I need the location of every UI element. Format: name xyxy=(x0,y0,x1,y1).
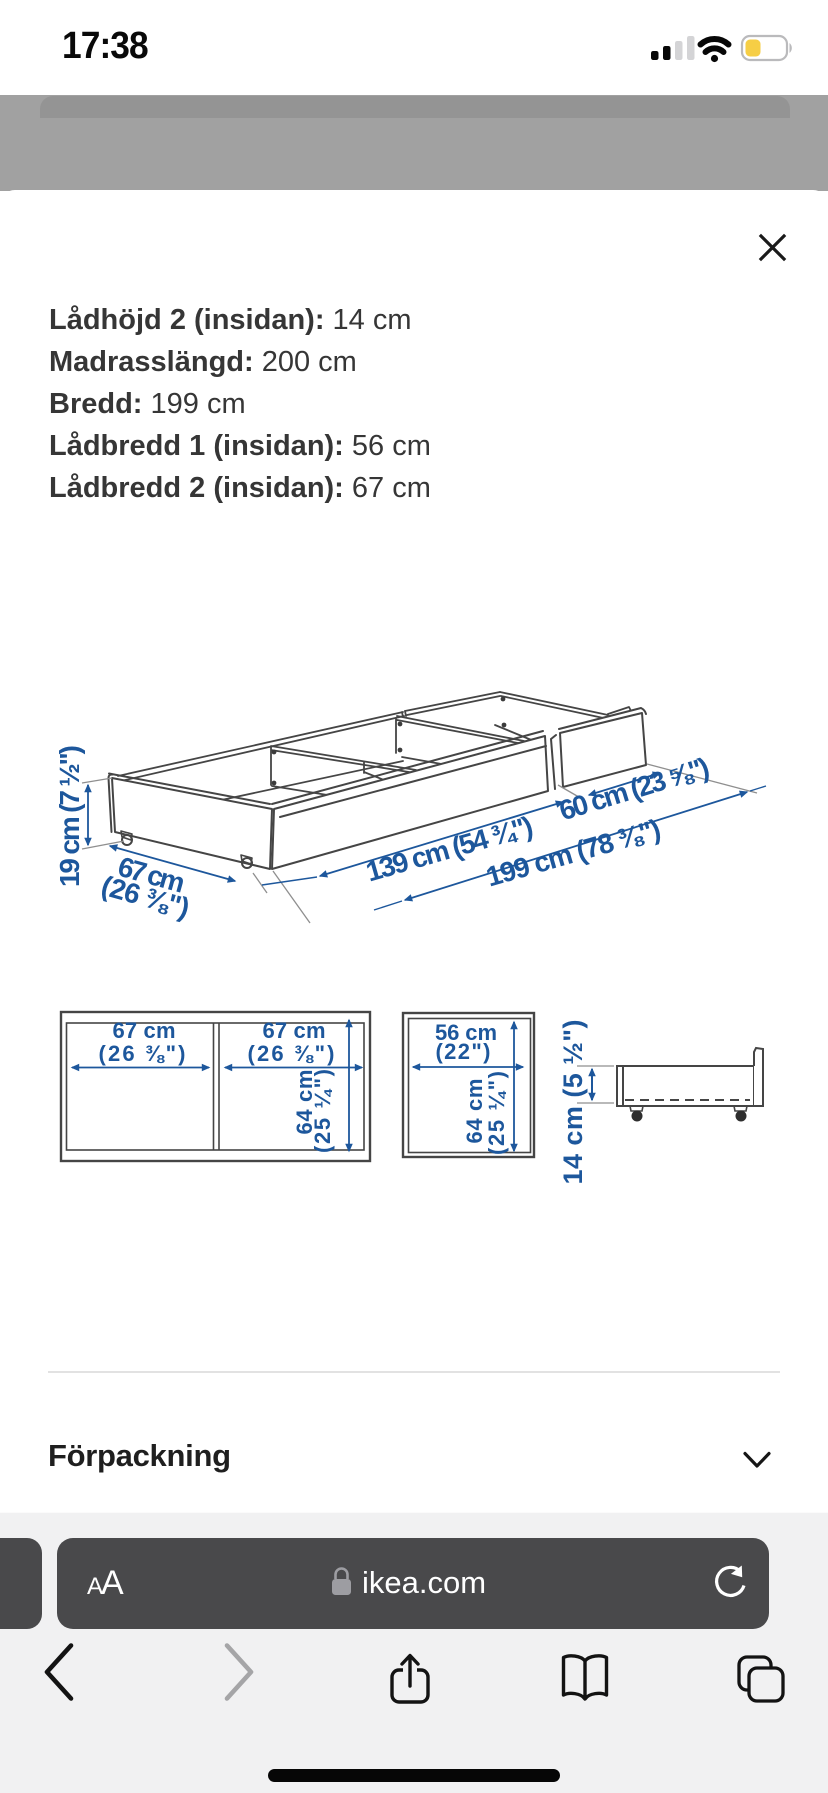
svg-text:14 cm (5 ½"): 14 cm (5 ½") xyxy=(558,1020,588,1185)
svg-text:(22"): (22") xyxy=(436,1039,491,1064)
svg-text:19 cm (7 ½"): 19 cm (7 ½") xyxy=(54,745,85,887)
svg-text:(25 ¼"): (25 ¼") xyxy=(484,1071,509,1155)
svg-text:(26 ⅜"): (26 ⅜") xyxy=(248,1041,335,1066)
svg-text:67 cm: 67 cm xyxy=(263,1018,326,1043)
svg-text:(26 ⅜"): (26 ⅜") xyxy=(99,1041,186,1066)
svg-text:(25 ¼"): (25 ¼") xyxy=(310,1069,335,1153)
svg-text:67 cm: 67 cm xyxy=(113,1018,176,1043)
